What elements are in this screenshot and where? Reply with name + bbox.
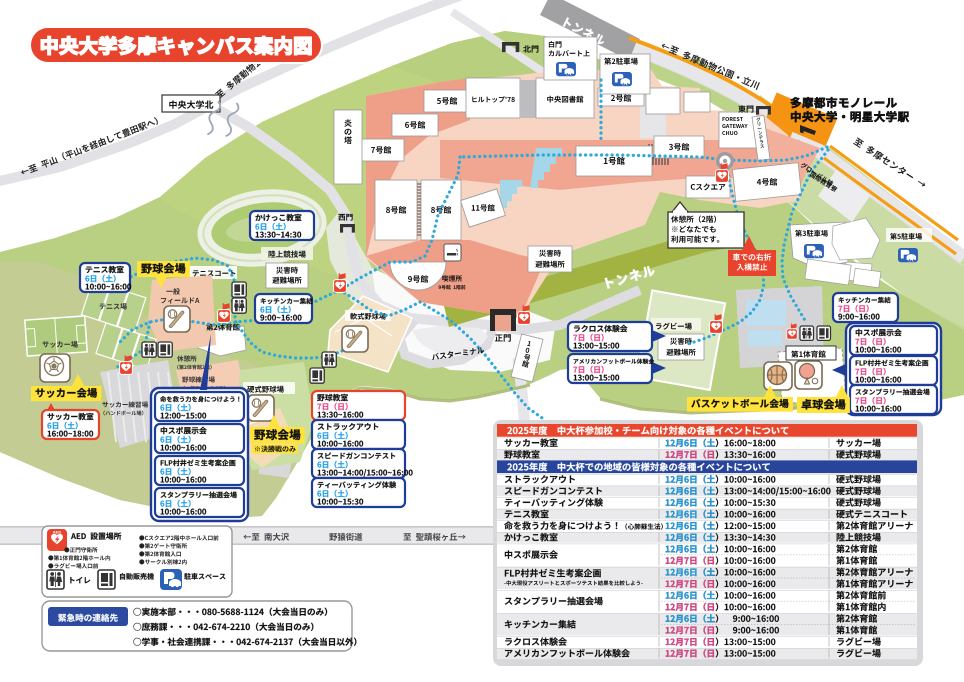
svg-text:AED: AED bbox=[53, 530, 62, 535]
